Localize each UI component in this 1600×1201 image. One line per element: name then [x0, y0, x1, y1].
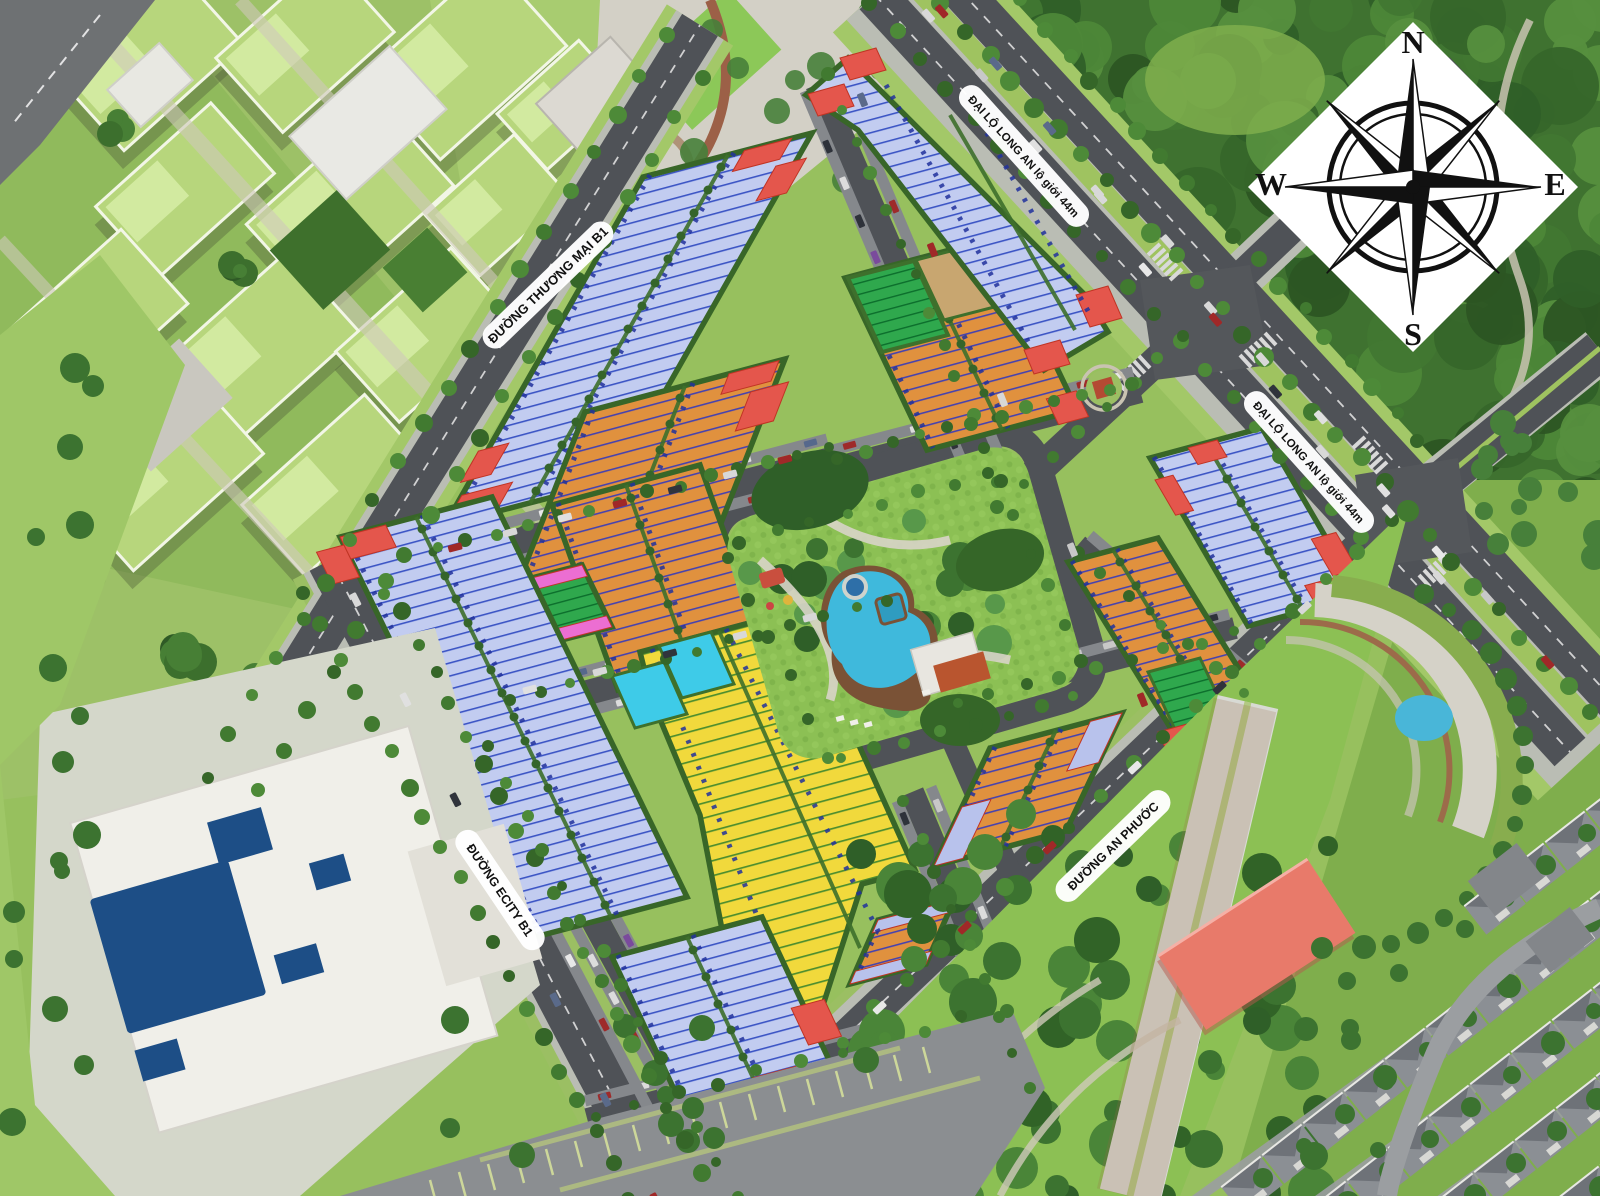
svg-text:N: N: [1401, 24, 1424, 60]
svg-text:S: S: [1404, 316, 1422, 352]
svg-text:W: W: [1255, 166, 1287, 202]
svg-text:E: E: [1544, 166, 1565, 202]
